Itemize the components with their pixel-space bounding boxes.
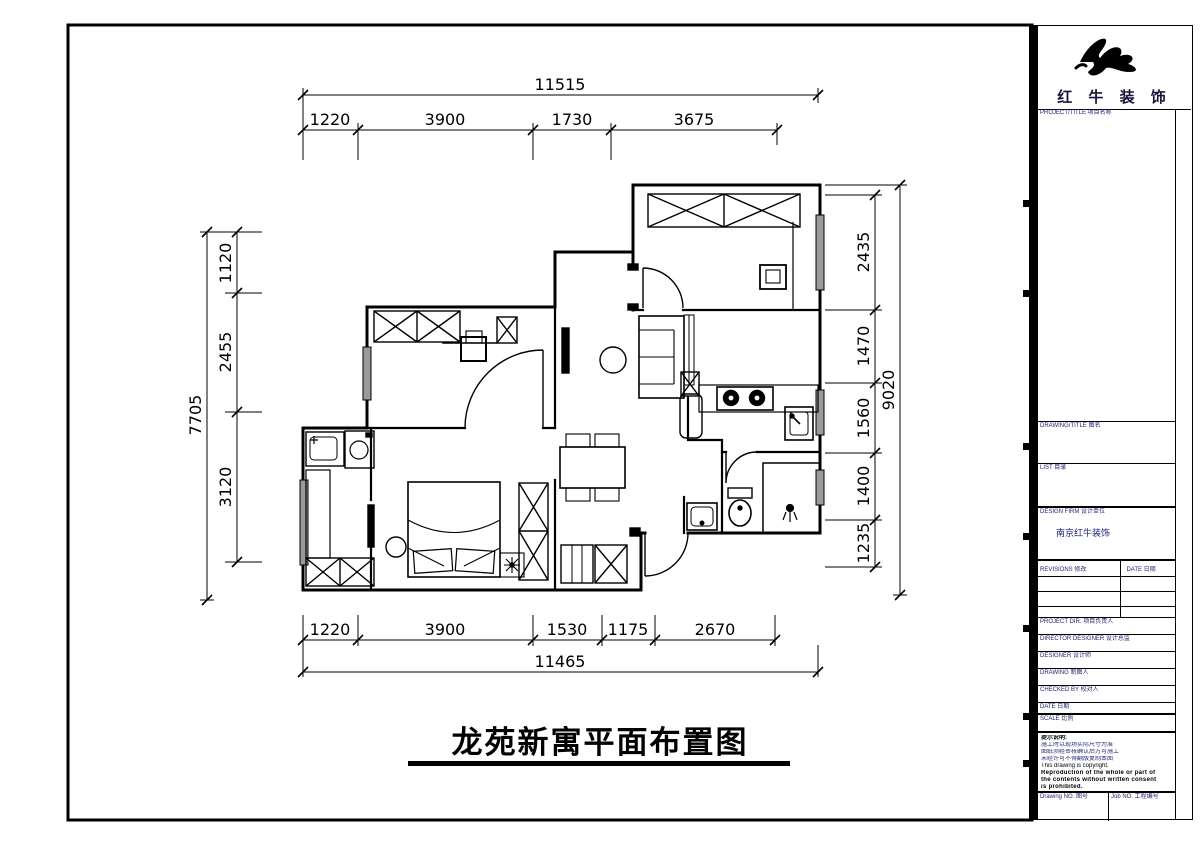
dim-bottom-total: 11465 (535, 652, 586, 671)
revisions-table: REVISIONS 修改 DATE 日期 (1038, 559, 1175, 617)
tv-cabinet (562, 328, 569, 373)
plan-title-underline (408, 761, 790, 766)
brand-name: 红 牛 装 饰 (1038, 86, 1191, 107)
scale-cell: SCALE 比例 (1038, 713, 1175, 731)
designer-row: DESIGNER 设计师 (1038, 652, 1175, 660)
dim-top-1: 1220 (310, 110, 351, 129)
design-firm-label: DESIGN FIRM 设计单位 (1038, 508, 1175, 516)
utility-cabinet (306, 558, 374, 586)
utility-sink (306, 432, 344, 466)
wardrobe-master (519, 483, 548, 580)
dim-left-total: 7705 (186, 395, 205, 436)
drawing-sheet: { "plan_title": { "text": "龙苑新寓平面布置图" },… (0, 0, 1200, 845)
drawing-no-label: Drawing NO. 图号 (1038, 793, 1108, 801)
dim-left-2: 2455 (216, 332, 235, 373)
director-designer-row: DIRECTOR DESIGNER 设计总监 (1038, 635, 1175, 643)
dim-bottom-4: 1175 (608, 620, 649, 639)
dim-right-1: 2435 (854, 232, 873, 273)
date-col-label: DATE 日期 (1124, 566, 1155, 574)
shower-symbol (783, 505, 797, 523)
dim-right-3: 1560 (854, 398, 873, 439)
design-firm-value: 南京红牛装饰 (1038, 516, 1175, 539)
dining-table (560, 434, 625, 501)
project-title-label: PROJECT/TITLE 项目名称 (1038, 109, 1175, 117)
design-firm-cell: DESIGN FIRM 设计单位 南京红牛装饰 (1038, 506, 1175, 559)
plant-symbol (500, 553, 524, 577)
dim-top-total: 11515 (535, 75, 586, 94)
notes-cell: 提示说明: 施工时以现场实际尺寸为准 图纸须经审核确认后方可施工 未经许可不得翻… (1038, 731, 1175, 791)
dim-left-1: 1120 (216, 243, 235, 284)
job-no-label: Job NO. 工程编号 (1109, 793, 1175, 801)
toilet (728, 488, 752, 526)
dim-top-2: 3900 (425, 110, 466, 129)
bed (408, 482, 500, 577)
note-line: Reproduction of the whole or part of (1038, 770, 1175, 777)
project-dir-row: PROJECT DIR. 项目负责人 (1038, 618, 1175, 626)
drawing-number-row: Drawing NO. 图号 Job NO. 工程编号 (1038, 791, 1175, 821)
side-table (461, 331, 486, 361)
dim-top-3: 1730 (552, 110, 593, 129)
note-line: the contents without written consent (1038, 777, 1175, 784)
note-line: 未经许可不得翻版复制本图 (1038, 756, 1175, 763)
dim-bottom-2: 3900 (425, 620, 466, 639)
plan-title-group: 龙苑新寓平面布置图 (408, 725, 790, 766)
bedside-stool (386, 537, 406, 557)
drawing-title-label: DRAWING/TITLE 图名 (1038, 422, 1175, 430)
title-block: 红 牛 装 饰 PROJECT/TITLE 项目名称 DRAWING/TITLE… (1038, 25, 1193, 820)
duct-column (497, 317, 517, 343)
checked-by-row: CHECKED BY 校对人 (1038, 686, 1175, 694)
title-block-right-column (1175, 109, 1192, 819)
dim-top-4: 3675 (674, 110, 715, 129)
job-no-cell: Job NO. 工程编号 (1109, 793, 1175, 821)
note-line: 提示说明: (1038, 735, 1175, 742)
note-line: This drawing is copyright. (1038, 763, 1175, 770)
brand-logo-bull-icon (1066, 28, 1156, 82)
note-line: 施工时以现场实际尺寸为准 (1038, 742, 1175, 749)
list-cell: LIST 目录 (1038, 463, 1175, 506)
cabinets (561, 545, 627, 583)
wash-basin (687, 503, 717, 530)
list-label: LIST 目录 (1038, 464, 1175, 472)
dim-right-2: 1470 (854, 326, 873, 367)
sofa (639, 316, 684, 398)
floor-plan-canvas: 11515 1220 3900 1730 3675 1220 3900 1530… (0, 0, 1200, 845)
wardrobe-bedroom2 (648, 194, 800, 227)
project-title-cell: PROJECT/TITLE 项目名称 (1038, 109, 1175, 421)
desk-bedroom2 (760, 222, 793, 310)
revision-row (1038, 591, 1175, 606)
round-table (600, 347, 626, 373)
dimension-labels: 11515 1220 3900 1730 3675 1220 3900 1530… (186, 75, 898, 671)
washing-machine (345, 431, 374, 468)
note-line: 图纸须经审核确认后方可施工 (1038, 749, 1175, 756)
fold-marks (1023, 200, 1029, 767)
scale-label: SCALE 比例 (1038, 715, 1175, 723)
note-line: is prohibited. (1038, 784, 1175, 791)
dim-left-3: 3120 (216, 467, 235, 508)
dim-right-total: 9020 (879, 370, 898, 411)
people-rows: PROJECT DIR. 项目负责人 DIRECTOR DESIGNER 设计总… (1038, 617, 1175, 713)
dim-right-5: 1235 (854, 523, 873, 564)
revisions-label: REVISIONS 修改 (1038, 566, 1120, 574)
revision-row (1038, 576, 1175, 591)
logo-cell: 红 牛 装 饰 (1038, 26, 1191, 110)
window-symbols (300, 215, 824, 565)
drawing-title-cell: DRAWING/TITLE 图名 (1038, 421, 1175, 463)
dim-bottom-5: 2670 (695, 620, 736, 639)
drawing-person-row: DRAWING 制图人 (1038, 669, 1175, 677)
wardrobe-left-bedroom (374, 311, 460, 342)
utility-counter (306, 470, 330, 558)
dim-bottom-3: 1530 (547, 620, 588, 639)
date-row: DATE 日期 (1038, 703, 1175, 711)
plan-title: 龙苑新寓平面布置图 (452, 725, 749, 760)
kitchen-counter (699, 385, 818, 412)
dim-bottom-1: 1220 (310, 620, 351, 639)
sheet-border (68, 25, 1038, 820)
drawing-no-cell: Drawing NO. 图号 (1038, 793, 1109, 821)
tv-master (368, 505, 374, 547)
dim-right-4: 1400 (854, 466, 873, 507)
